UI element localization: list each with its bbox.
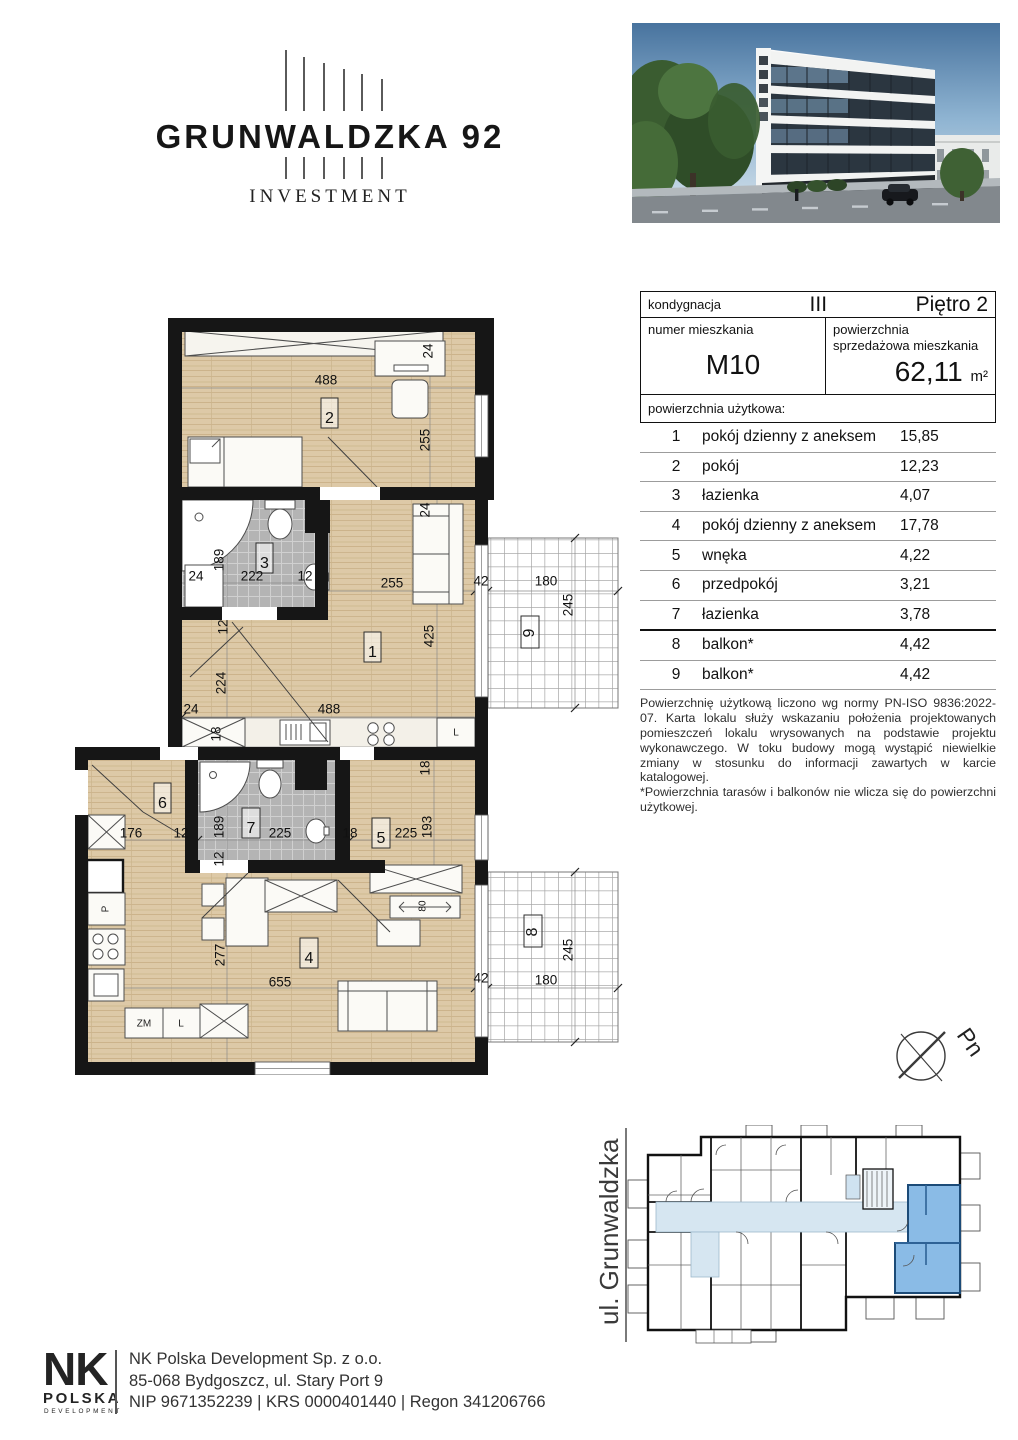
fridge-label: L	[453, 728, 459, 739]
north-label: Pn	[952, 1023, 989, 1061]
room-name: łazienka	[702, 487, 900, 505]
brand-title: GRUNWALDZKA 92	[118, 118, 542, 156]
unit-info-table: kondygnacja III Piętro 2 numer mieszkani…	[640, 291, 996, 815]
dim-label: 488	[315, 373, 338, 388]
usable-area-label: powierzchnia użytkowa:	[641, 395, 995, 422]
nk-logo: NK	[43, 1342, 107, 1396]
room-row: 4pokój dzienny z aneksem17,78	[640, 512, 996, 542]
room-area: 4,42	[900, 636, 996, 654]
room-name: łazienka	[702, 606, 900, 624]
dim-label: 24	[183, 702, 199, 717]
dim-label: 255	[381, 576, 404, 591]
dim-label: 18	[209, 726, 224, 741]
dim-label: 180	[535, 973, 558, 988]
apartment-card-page: GRUNWALDZKA 92 INVESTMENT	[0, 0, 1018, 1440]
building-photo	[632, 23, 1000, 223]
balcony-8-floor	[488, 872, 618, 1042]
room-row: 1pokój dzienny z aneksem15,85	[640, 423, 996, 453]
dim-label: 222	[241, 569, 264, 584]
room-area: 4,07	[900, 487, 996, 505]
room-row: 7łazienka3,78	[640, 601, 996, 632]
room-row: 3łazienka4,07	[640, 482, 996, 512]
dim-label: 425	[422, 625, 437, 648]
unit-info-header: kondygnacja III Piętro 2 numer mieszkani…	[640, 291, 996, 423]
dim-label: 42	[473, 971, 488, 986]
company-info: NK Polska Development Sp. z o.o. 85-068 …	[129, 1349, 546, 1414]
room-label-6: 6	[158, 795, 167, 812]
room-name: pokój dzienny z aneksem	[702, 428, 900, 446]
dim-label: 225	[269, 826, 292, 841]
dim-label: 193	[420, 816, 435, 839]
dim-label: 224	[214, 671, 229, 694]
room-name: balkon*	[702, 666, 900, 684]
dim-label: 12	[297, 569, 312, 584]
street-label: ul. Grunwaldzka	[596, 1138, 624, 1325]
room-label-4: 4	[305, 950, 314, 967]
company-address: 85-068 Bydgoszcz, ul. Stary Port 9	[129, 1371, 546, 1393]
sale-area-value: 62,11	[895, 356, 963, 387]
logo-line-icon	[285, 50, 287, 111]
logo-tick-icon	[343, 157, 345, 179]
dim-label: 18	[342, 826, 357, 841]
logo-line-icon	[343, 69, 345, 111]
dim-label: 12	[212, 851, 227, 866]
dim-label: 225	[395, 826, 418, 841]
floor-label: kondygnacja	[648, 297, 721, 312]
room-nr: 8	[650, 636, 702, 654]
room-area: 4,22	[900, 547, 996, 565]
dim-label: 245	[561, 594, 576, 617]
dim-label: 189	[212, 549, 227, 572]
room-label-9: 9	[521, 628, 538, 637]
room-name: balkon*	[702, 636, 900, 654]
logo-line-icon	[303, 57, 305, 111]
logo-tick-icon	[381, 157, 383, 179]
dim-label: 12	[173, 826, 188, 841]
unit-row: numer mieszkania M10 powierzchnia sprzed…	[641, 318, 995, 395]
room-nr: 5	[650, 547, 702, 565]
floor-plan: 1 2 3 4 5 6 7 8 9 488 24 255 189 24 222 …	[72, 310, 628, 1075]
floor-overview-plan: ul. Grunwaldzka	[596, 1125, 1018, 1345]
room-row: 9balkon*4,42	[640, 661, 996, 691]
room-label-2: 2	[325, 410, 334, 427]
logo-tick-icon	[361, 157, 363, 179]
disclaimer-text-2: *Powierzchnia tarasów i balkonów nie wli…	[640, 785, 996, 815]
room-name: wnęka	[702, 547, 900, 565]
dim-label: 80	[418, 900, 429, 912]
disclaimer: Powierzchnię użytkową liczono wg normy P…	[640, 696, 996, 814]
dim-label: 24	[188, 569, 204, 584]
unit-number-value: M10	[648, 349, 818, 381]
room-nr: 4	[650, 517, 702, 535]
room-area: 15,85	[900, 428, 996, 446]
logo-tick-icon	[323, 157, 325, 179]
room-name: przedpokój	[702, 576, 900, 594]
fridge2-label: L	[178, 1019, 184, 1030]
room-nr: 7	[650, 606, 702, 624]
room-nr: 1	[650, 428, 702, 446]
oven-label: P	[101, 905, 112, 912]
disclaimer-text-1: Powierzchnię użytkową liczono wg normy P…	[640, 696, 996, 785]
company-registry: NIP 9671352239 | KRS 0000401440 | Regon …	[129, 1392, 546, 1414]
compass-north-icon: Pn	[872, 995, 1018, 1107]
logo-tick-icon	[303, 157, 305, 179]
dim-label: 277	[213, 944, 228, 967]
unit-number-cell: numer mieszkania M10	[641, 318, 825, 394]
room-nr: 3	[650, 487, 702, 505]
nk-logo-polska: POLSKA	[43, 1390, 121, 1407]
floor-row: kondygnacja III Piętro 2	[641, 292, 995, 318]
dim-label: 42	[473, 574, 488, 589]
room-area: 3,21	[900, 576, 996, 594]
dim-label: 255	[418, 429, 433, 452]
logo-line-icon	[361, 74, 363, 111]
unit-number-label: numer mieszkania	[648, 322, 818, 337]
room-area: 12,23	[900, 458, 996, 476]
sale-area-unit: m²	[971, 368, 989, 385]
dim-label: 655	[269, 975, 292, 990]
dim-label: 180	[535, 574, 558, 589]
dim-label: 176	[120, 826, 143, 841]
dim-label: 12	[216, 619, 231, 634]
room-label-1: 1	[368, 644, 377, 661]
sale-area-cell: powierzchnia sprzedażowa mieszkania 62,1…	[825, 318, 995, 394]
balcony-9-floor	[488, 538, 618, 708]
brand-logo: GRUNWALDZKA 92 INVESTMENT	[118, 28, 542, 214]
dim-label: 245	[561, 939, 576, 962]
logo-line-icon	[323, 63, 325, 111]
company-name: NK Polska Development Sp. z o.o.	[129, 1349, 546, 1371]
room-row: 2pokój12,23	[640, 453, 996, 483]
room-name: pokój dzienny z aneksem	[702, 517, 900, 535]
dim-label: 18	[418, 760, 433, 775]
dim-label: 24	[418, 502, 433, 518]
room-row: 6przedpokój3,21	[640, 571, 996, 601]
brand-subtitle: INVESTMENT	[118, 186, 542, 208]
nk-logo-development: DEVELOPMENT	[44, 1408, 122, 1415]
person	[795, 189, 798, 201]
dim-label: 488	[318, 702, 341, 717]
floor-name: Piętro 2	[916, 293, 988, 317]
sale-area-label: powierzchnia sprzedażowa mieszkania	[833, 322, 988, 353]
logo-line-icon	[381, 79, 383, 111]
room-label-7: 7	[247, 820, 256, 837]
floor-fills	[88, 332, 618, 1062]
dim-label: 24	[421, 343, 436, 359]
room-label-5: 5	[377, 830, 386, 847]
room-list: 1pokój dzienny z aneksem15,85 2pokój12,2…	[640, 423, 996, 690]
room-area: 3,78	[900, 606, 996, 624]
dim-label: 189	[212, 816, 227, 839]
room-name: pokój	[702, 458, 900, 476]
room-label-8: 8	[524, 927, 541, 936]
dishwasher-label: ZM	[137, 1019, 151, 1030]
room-row: 5wnęka4,22	[640, 541, 996, 571]
floor-value: III	[721, 293, 916, 317]
logo-tick-icon	[285, 157, 287, 179]
room-nr: 2	[650, 458, 702, 476]
room-nr: 9	[650, 666, 702, 684]
room-area: 17,78	[900, 517, 996, 535]
room-area: 4,42	[900, 666, 996, 684]
room-row: 8balkon*4,42	[640, 631, 996, 661]
room-nr: 6	[650, 576, 702, 594]
footer-divider	[115, 1350, 117, 1414]
